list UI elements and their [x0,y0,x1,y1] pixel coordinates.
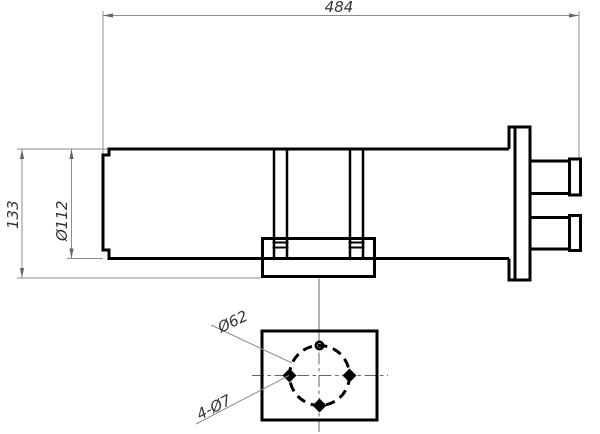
arrowhead-right [569,13,579,17]
dimension-body-diameter: Ø112 [53,149,103,259]
leader-holes: 4-Ø7 [194,376,289,425]
dimension-label-diameter: Ø112 [53,201,71,242]
hole-right [343,369,357,383]
technical-drawing: 484 133 Ø112 [0,0,600,434]
leader-bolt-circle: Ø62 [211,307,292,363]
stub-top [530,161,568,194]
hole-left [283,369,297,383]
arrowhead-top [20,149,24,159]
stub-top-cap [570,159,581,195]
side-view [103,126,581,282]
arrowhead-top [69,149,73,159]
holes-label: 4-Ø7 [194,391,235,424]
dimension-label-height: 133 [4,200,22,229]
cylinder-left-end [103,148,109,261]
stub-bottom-cap [570,216,581,251]
bolt-circle-label: Ø62 [214,307,251,337]
arrowhead-left [103,13,113,17]
arrowhead-bottom [69,249,73,259]
flange-steps [509,127,530,280]
drawing-canvas: 484 133 Ø112 [0,0,600,434]
arrowhead-bottom [20,268,24,278]
stub-bottom [530,218,568,250]
dimension-label-length: 484 [325,0,354,16]
hole-bottom [313,399,327,413]
